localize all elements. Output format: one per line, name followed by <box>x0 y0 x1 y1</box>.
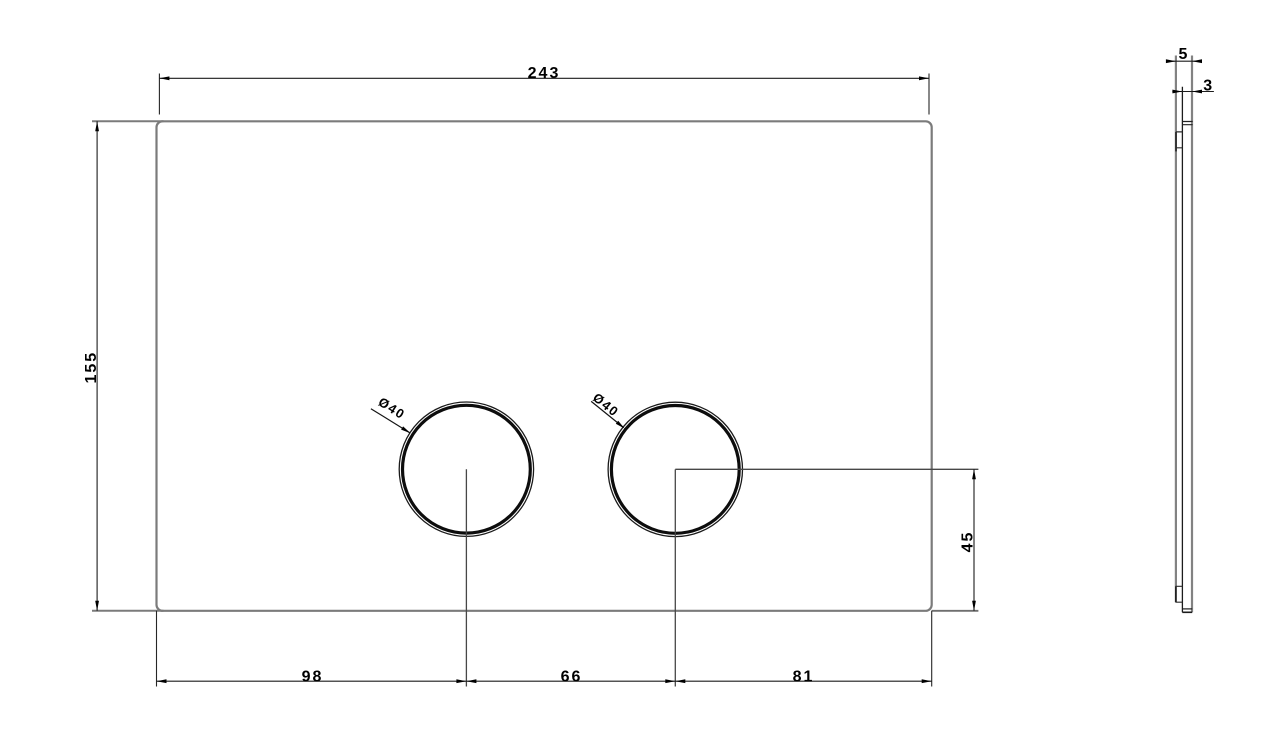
svg-text:66: 66 <box>561 668 583 685</box>
svg-text:243: 243 <box>528 65 561 82</box>
svg-text:3: 3 <box>1203 77 1214 94</box>
svg-text:155: 155 <box>83 351 100 384</box>
svg-text:81: 81 <box>793 668 815 685</box>
svg-text:45: 45 <box>960 531 977 553</box>
svg-text:98: 98 <box>302 668 324 685</box>
svg-text:5: 5 <box>1179 46 1190 63</box>
